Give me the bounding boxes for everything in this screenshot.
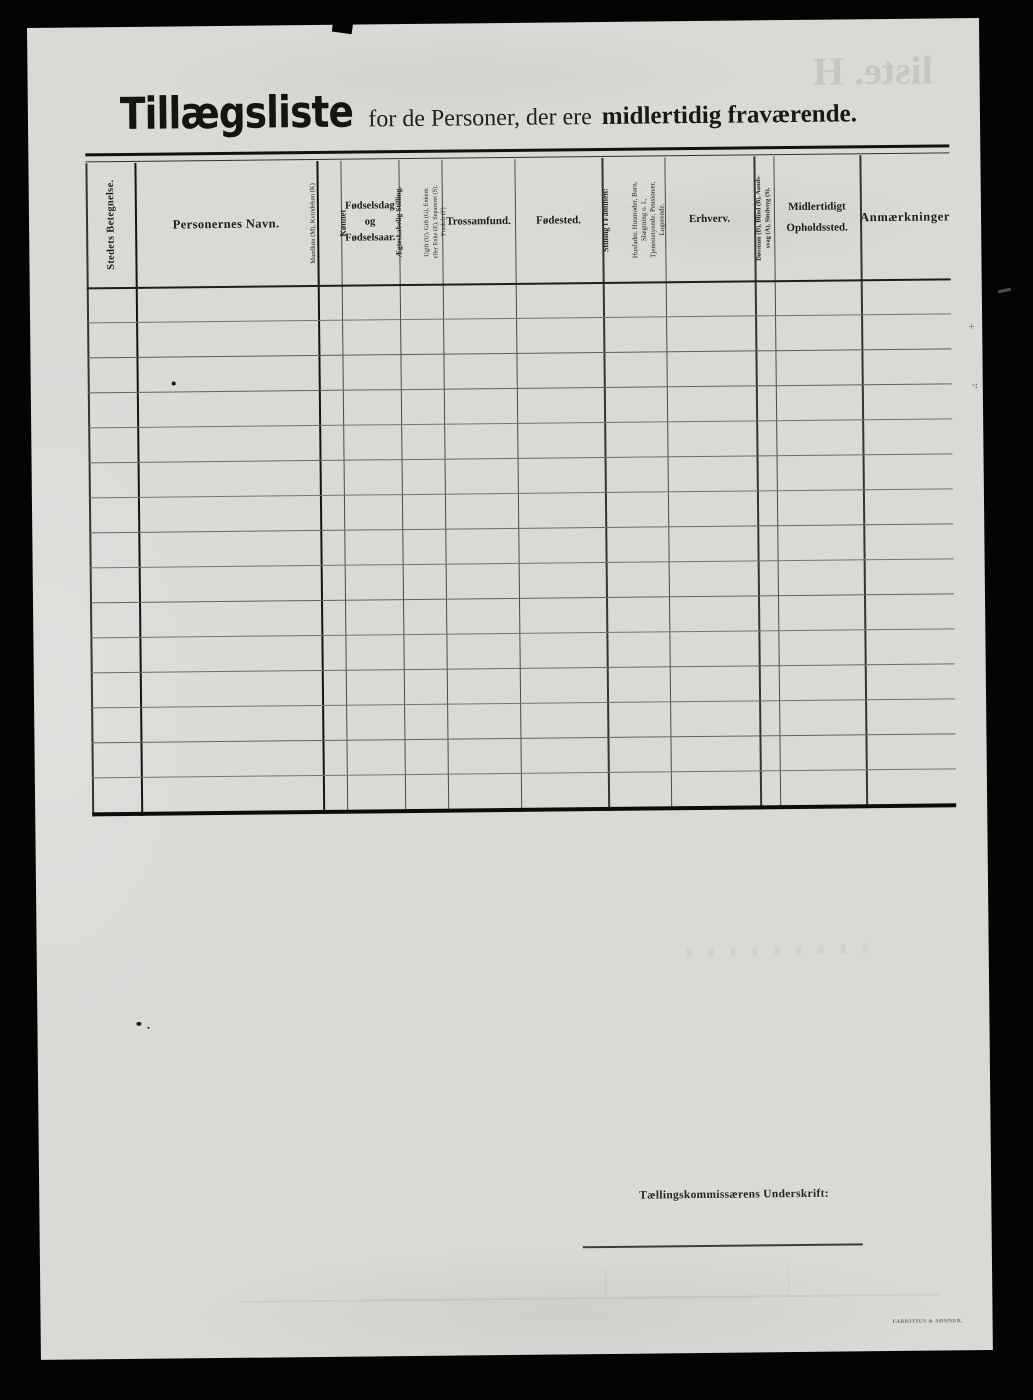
ink-speck bbox=[172, 381, 176, 385]
stilling-main-label: Stilling i Familien: bbox=[600, 161, 611, 279]
col-header-anmaerkninger: Anmærkninger bbox=[859, 154, 950, 279]
table-row-line bbox=[89, 488, 953, 498]
form-title-subtitle: for de Personer, der ere bbox=[368, 104, 592, 133]
bleedthrough-handwriting bbox=[680, 943, 875, 957]
table-row-line bbox=[91, 663, 955, 673]
paper-sheet: liste. H Tillægsliste for de Personer, d… bbox=[27, 18, 993, 1360]
table-row-line bbox=[91, 698, 955, 708]
table-row-line bbox=[88, 418, 952, 428]
col-header-midlertidigt: Midlertidigt Opholdssted. bbox=[773, 155, 860, 280]
col-header-stedets-betegnelse: Stedets Betegnelse. bbox=[85, 163, 135, 288]
table-row-line bbox=[89, 453, 953, 463]
table-row-line bbox=[90, 558, 954, 568]
table-row-line bbox=[87, 313, 951, 323]
col-header-erhverv: Erhverv. bbox=[664, 156, 754, 281]
stilling-sub-label: Husfader, Husmoder, Barn, Slægtning o. l… bbox=[630, 160, 668, 278]
konnet-sub-label: Mandkøn (M), Kvindekøn (K) bbox=[309, 164, 318, 282]
col-header-dovstum: Døvstum (D), Blind (B), Aands- svag (A),… bbox=[753, 156, 774, 280]
bleedthrough-line bbox=[240, 1294, 940, 1303]
aegteskabelig-main-label: Ægteskabelig Stilling. bbox=[393, 163, 404, 281]
table-row-line bbox=[91, 733, 955, 743]
table-bottom-rule bbox=[92, 803, 956, 816]
signature-line bbox=[583, 1243, 863, 1248]
bleedthrough-tick bbox=[788, 1267, 789, 1295]
form-title-main: Tillægsliste bbox=[120, 87, 354, 140]
col-header-stilling: Stilling i Familien: Husfader, Husmoder,… bbox=[601, 157, 665, 282]
frame-scratch bbox=[998, 288, 1011, 294]
table-row-line bbox=[92, 768, 956, 778]
scan-mark-cross: + bbox=[968, 321, 974, 333]
table-row-line bbox=[89, 523, 953, 533]
form-title: Tillægsliste for de Personer, der ere mi… bbox=[120, 81, 857, 140]
scanned-census-form: { "document": { "title": "Tillægsliste",… bbox=[0, 0, 1033, 1400]
table-row-line bbox=[90, 628, 954, 638]
col-header-konnet: Mandkøn (M), Kvindekøn (K) Kønnet bbox=[316, 161, 341, 285]
table-row-line bbox=[88, 383, 952, 393]
frame-notch bbox=[332, 13, 354, 35]
table-row-line bbox=[90, 593, 954, 603]
col-header-aegteskabelig: Ægteskabelig Stilling. Ugift (U), Gift (… bbox=[398, 160, 442, 284]
scan-mark-dots: ·: bbox=[972, 380, 978, 390]
col-header-dovstum-label: Døvstum (D), Blind (B), Aands- svag (A),… bbox=[755, 159, 774, 277]
col-header-trossamfund: Trossamfund. bbox=[441, 159, 515, 284]
form-title-subtitle-bold: midlertidig fraværende. bbox=[602, 100, 857, 131]
col-header-stedets-betegnelse-label: Stedets Betegnelse. bbox=[103, 166, 117, 284]
signature-label: Tællingskommissærens Underskrift: bbox=[639, 1188, 829, 1202]
ink-speck bbox=[136, 1022, 141, 1026]
printer-imprint: FABRITIUS & SØNNER. bbox=[893, 1318, 964, 1325]
ink-speck bbox=[147, 1027, 149, 1029]
bleedthrough-tick bbox=[605, 1269, 606, 1297]
table-row-line bbox=[87, 348, 951, 358]
